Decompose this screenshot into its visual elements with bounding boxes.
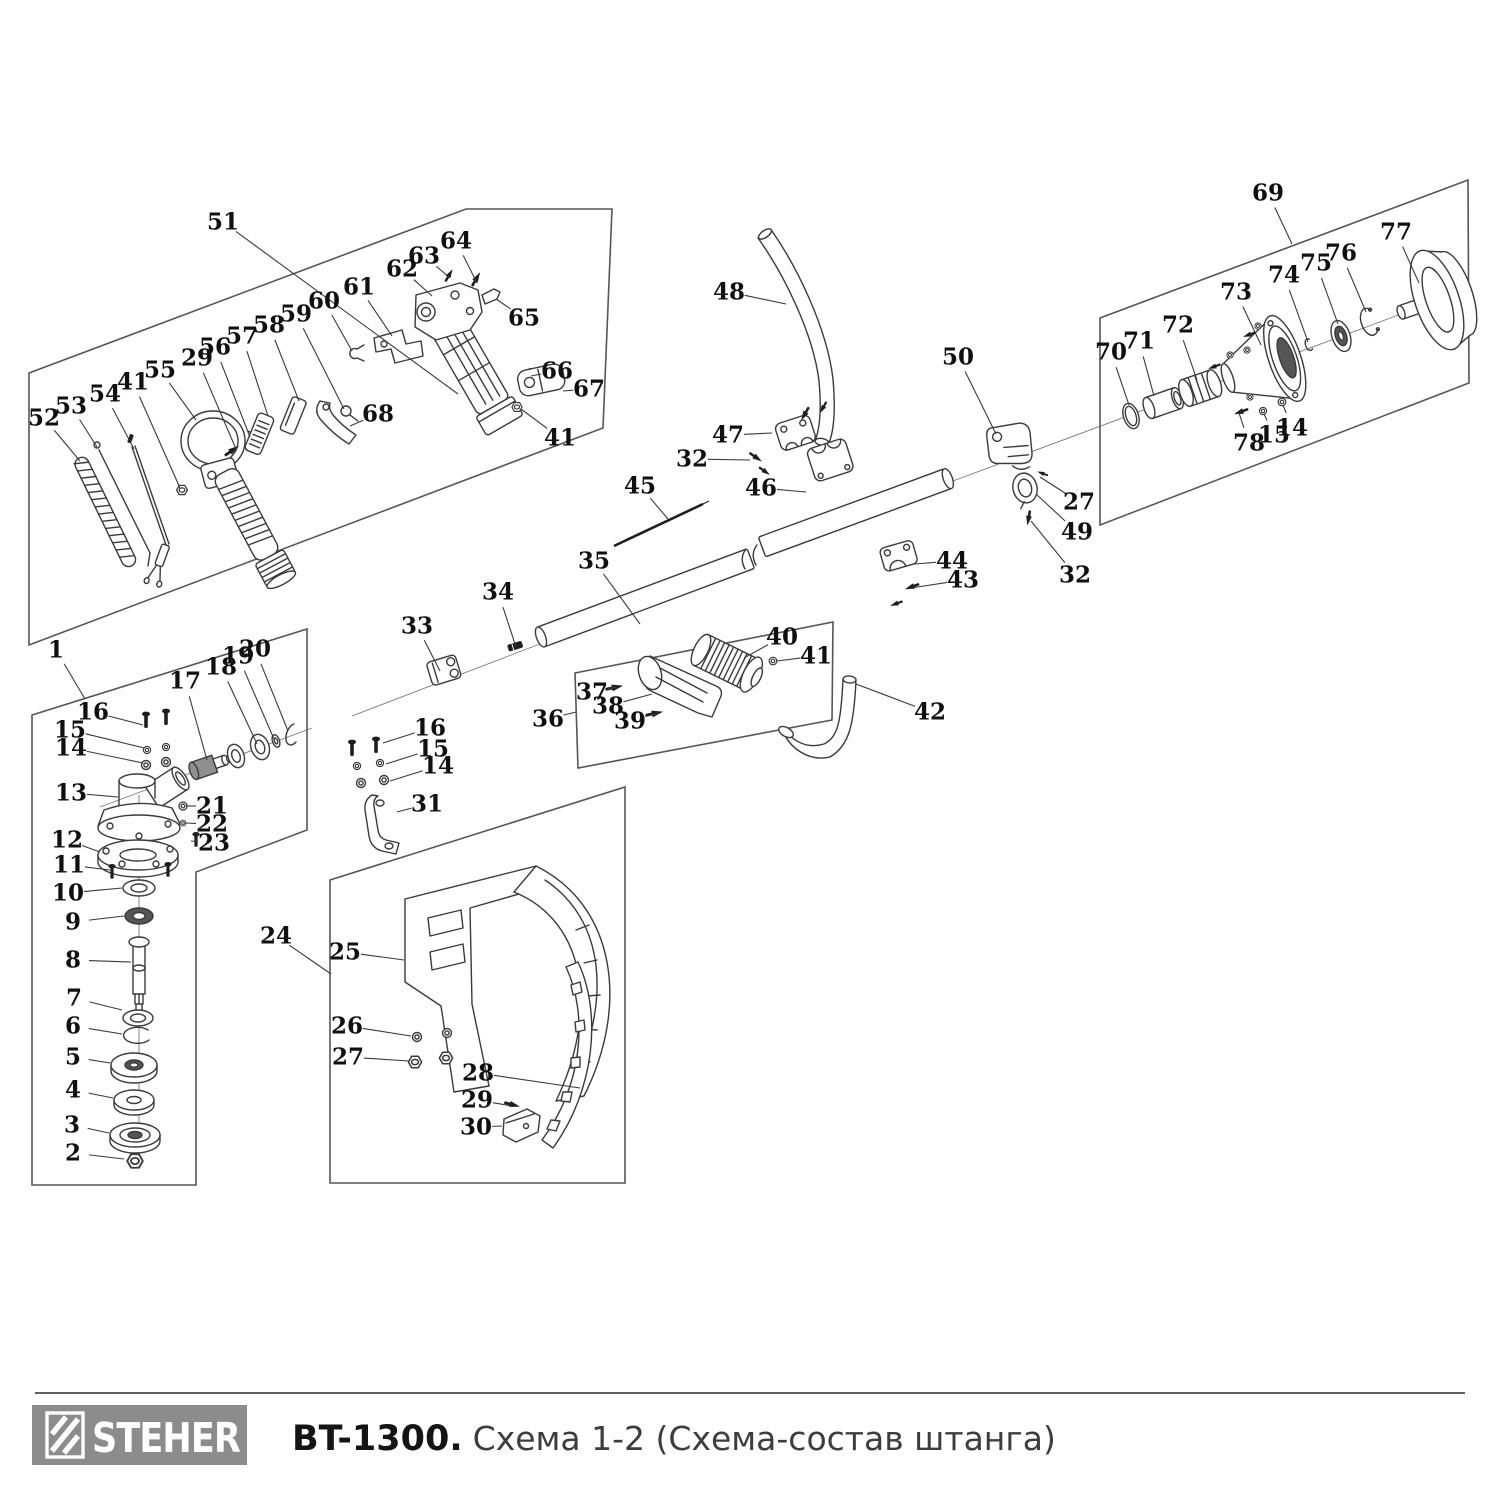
part-14-washer [380, 776, 389, 785]
callout-4: 4 [65, 1077, 81, 1104]
callout-32: 32 [676, 446, 708, 473]
part-12-flange-plate [98, 840, 178, 877]
callout-leader-67 [563, 390, 573, 391]
part-78-washer [1247, 394, 1253, 400]
callout-17: 17 [169, 668, 201, 695]
part-5-holder [111, 1053, 157, 1083]
callout-46: 46 [745, 475, 777, 502]
part-2-nut [127, 1154, 143, 1168]
callout-6: 6 [65, 1013, 81, 1040]
part-27-nut [408, 1056, 421, 1067]
callout-34: 34 [482, 579, 514, 606]
part-7-bearing [123, 1010, 153, 1026]
callout-11: 11 [53, 852, 85, 879]
model-number: BT-1300. [292, 1419, 463, 1459]
part-21-washer [179, 802, 187, 810]
callout-60: 60 [308, 288, 340, 315]
part-78-washer [1244, 347, 1250, 353]
callout-66: 66 [541, 358, 573, 385]
callout-54: 54 [89, 381, 121, 408]
part-26-washer [443, 1029, 452, 1038]
callout-32: 32 [1059, 562, 1091, 589]
callout-40: 40 [766, 624, 798, 651]
callout-35: 35 [578, 548, 610, 575]
callout-74: 74 [1268, 262, 1300, 289]
callout-47: 47 [712, 422, 744, 449]
callout-36: 36 [532, 706, 564, 733]
callout-41: 41 [800, 643, 832, 670]
part-3-cup-washer [110, 1123, 160, 1153]
part-15-washer [1259, 407, 1266, 414]
exploded-parts-diagram: 5164636261605958575629554154535265666768… [0, 0, 1500, 1500]
part-41-nut [769, 657, 777, 665]
callout-50: 50 [942, 344, 974, 371]
part-41-nut [512, 403, 522, 412]
callout-26: 26 [331, 1013, 363, 1040]
callout-71: 71 [1123, 328, 1155, 355]
callout-10: 10 [52, 880, 84, 907]
callout-77: 77 [1380, 219, 1412, 246]
callout-13: 13 [55, 780, 87, 807]
callout-68: 68 [362, 401, 394, 428]
schema-subtitle: Схема 1-2 (Схема-состав штанга) [473, 1419, 1056, 1458]
part-14-washer [357, 779, 366, 788]
callout-64: 64 [440, 228, 472, 255]
part-26-washer [413, 1033, 422, 1042]
callout-23: 23 [198, 830, 230, 857]
part-4-disc [114, 1090, 154, 1115]
callout-39: 39 [614, 708, 646, 735]
callout-43: 43 [947, 567, 979, 594]
part-15-washer [376, 759, 383, 766]
callout-69: 69 [1252, 180, 1284, 207]
callout-67: 67 [573, 376, 605, 403]
part-15-washer [143, 746, 150, 753]
callout-51: 51 [207, 209, 239, 236]
callout-14: 14 [422, 753, 454, 780]
callout-31: 31 [411, 791, 443, 818]
callout-5: 5 [65, 1044, 81, 1071]
callout-28: 28 [462, 1060, 494, 1087]
callout-72: 72 [1162, 312, 1194, 339]
callout-9: 9 [65, 909, 81, 936]
callout-49: 49 [1061, 519, 1093, 546]
diagram-title: BT-1300.Схема 1-2 (Схема-состав штанга) [292, 1419, 1056, 1459]
callout-12: 12 [51, 827, 83, 854]
callout-24: 24 [260, 923, 292, 950]
part-27-nut [439, 1052, 452, 1063]
callout-65: 65 [508, 305, 540, 332]
callout-73: 73 [1220, 279, 1252, 306]
callout-29: 29 [461, 1087, 493, 1114]
callout-14: 14 [55, 735, 87, 762]
callout-3: 3 [64, 1112, 80, 1139]
callout-7: 7 [66, 985, 82, 1012]
part-10-bearing [123, 880, 155, 896]
callout-29: 29 [181, 345, 213, 372]
callout-27: 27 [1063, 489, 1095, 516]
callout-2: 2 [65, 1140, 81, 1167]
callout-30: 30 [460, 1114, 492, 1141]
part-41-nut [177, 485, 188, 494]
callout-20: 20 [239, 636, 271, 663]
callout-leader-32 [708, 459, 750, 460]
callout-33: 33 [401, 613, 433, 640]
part-14-washer [1278, 398, 1286, 406]
callout-61: 61 [343, 274, 375, 301]
part-78-washer [1255, 323, 1261, 329]
callout-8: 8 [65, 947, 81, 974]
callout-14: 14 [1276, 415, 1308, 442]
brand-name: STEHER [92, 1414, 240, 1462]
callout-42: 42 [914, 699, 946, 726]
callout-1: 1 [48, 637, 64, 664]
part-15-washer [353, 762, 360, 769]
part-15-washer [162, 743, 169, 750]
callout-48: 48 [713, 279, 745, 306]
callout-27: 27 [332, 1044, 364, 1071]
part-14-washer [142, 761, 151, 770]
callout-52: 52 [28, 405, 60, 432]
callout-25: 25 [329, 939, 361, 966]
part-78-washer [1227, 352, 1233, 358]
callout-41: 41 [544, 425, 576, 452]
part-9-bearing [125, 908, 153, 924]
callout-76: 76 [1325, 240, 1357, 267]
callout-45: 45 [624, 473, 656, 500]
part-14-washer [162, 758, 171, 767]
callout-62: 62 [386, 256, 418, 283]
callout-41: 41 [117, 369, 149, 396]
